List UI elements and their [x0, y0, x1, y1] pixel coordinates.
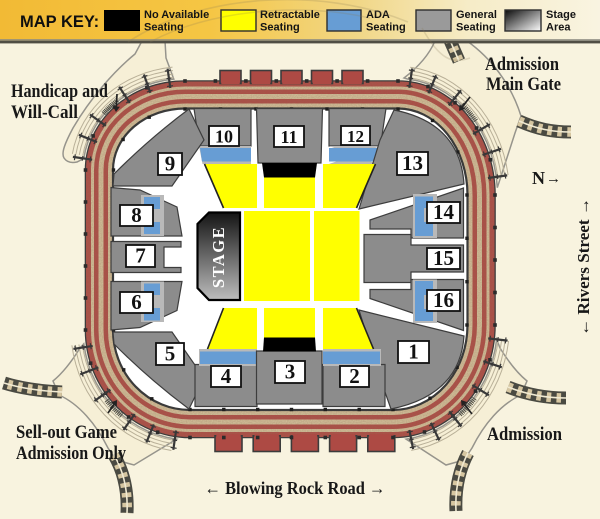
svg-text:Main Gate: Main Gate [486, 74, 561, 95]
svg-text:MAP KEY:: MAP KEY: [20, 13, 99, 31]
svg-text:N: N [532, 168, 545, 188]
svg-text:→: → [546, 171, 561, 187]
svg-text:2: 2 [349, 364, 360, 388]
svg-text:General: General [456, 9, 497, 21]
svg-text:3: 3 [285, 360, 296, 384]
svg-text:14: 14 [433, 200, 455, 224]
svg-text:Admission: Admission [487, 424, 562, 445]
svg-text:13: 13 [402, 151, 423, 175]
svg-text:1: 1 [408, 340, 419, 364]
svg-text:Stage: Stage [546, 9, 576, 21]
svg-text:Seating: Seating [456, 22, 496, 34]
svg-text:Seating: Seating [260, 22, 300, 34]
svg-text:11: 11 [280, 127, 297, 147]
svg-text:Admission: Admission [485, 54, 559, 75]
svg-text:12: 12 [347, 127, 364, 146]
svg-text:9: 9 [165, 152, 176, 176]
svg-text:6: 6 [131, 290, 142, 314]
svg-text:Admission Only: Admission Only [16, 443, 126, 464]
svg-text:4: 4 [221, 364, 232, 388]
svg-text:Sell-out Game: Sell-out Game [16, 422, 117, 443]
svg-text:16: 16 [433, 288, 454, 312]
svg-text:8: 8 [131, 203, 142, 227]
svg-text:Seating: Seating [366, 22, 406, 34]
svg-text:7: 7 [135, 244, 146, 268]
svg-text:15: 15 [433, 246, 454, 270]
svg-text:Handicap and: Handicap and [11, 81, 108, 102]
svg-text:10: 10 [215, 127, 233, 147]
svg-text:5: 5 [165, 342, 176, 366]
svg-text:Will-Call: Will-Call [11, 102, 78, 123]
svg-text:← Rivers Street →: ← Rivers Street → [574, 198, 593, 336]
svg-text:Area: Area [546, 22, 571, 34]
svg-text:← Blowing Rock Road →: ← Blowing Rock Road → [205, 478, 386, 498]
svg-text:STAGE: STAGE [209, 226, 228, 288]
